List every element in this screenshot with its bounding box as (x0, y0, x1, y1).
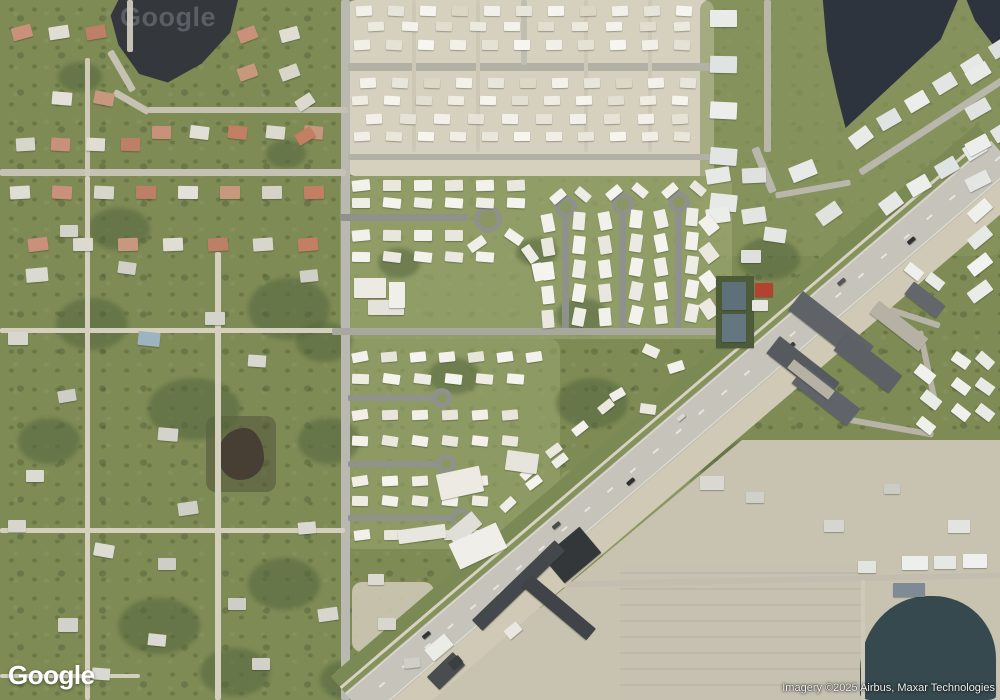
building (572, 212, 585, 231)
building (52, 185, 73, 199)
building (352, 436, 368, 447)
building (412, 410, 428, 421)
building (441, 435, 458, 447)
building (476, 180, 494, 192)
building (710, 101, 738, 119)
building (541, 285, 555, 304)
building (858, 561, 876, 573)
building (93, 90, 115, 107)
building (411, 435, 428, 447)
building (368, 574, 384, 585)
road (0, 169, 346, 176)
building (297, 237, 318, 252)
building (934, 556, 956, 569)
building (674, 40, 691, 51)
building (654, 281, 669, 301)
building (424, 78, 440, 89)
road (562, 207, 569, 331)
building (507, 373, 525, 384)
building (434, 114, 450, 125)
building (648, 78, 665, 89)
building (227, 125, 247, 140)
building (824, 520, 844, 532)
building (118, 238, 138, 252)
building (741, 250, 761, 263)
vehicle (907, 236, 916, 245)
vehicle (837, 277, 846, 286)
building (925, 272, 946, 292)
building (414, 230, 432, 241)
building (414, 197, 433, 209)
cul-de-sac-island (560, 201, 572, 213)
building (476, 197, 495, 208)
building (438, 351, 455, 363)
building (400, 114, 417, 125)
building (25, 267, 48, 283)
building (416, 96, 432, 106)
building (606, 22, 622, 31)
building (410, 351, 427, 363)
building (445, 251, 464, 263)
building (742, 167, 767, 183)
building (413, 251, 432, 263)
building (353, 529, 370, 541)
building (640, 96, 656, 106)
building (383, 230, 401, 241)
building (674, 22, 690, 32)
building (366, 114, 383, 125)
building (8, 332, 28, 345)
building (450, 40, 466, 50)
building (950, 351, 971, 370)
building (541, 310, 554, 329)
building (884, 484, 900, 494)
building (177, 501, 199, 517)
building (86, 138, 106, 152)
building (352, 198, 370, 208)
building (57, 389, 77, 404)
building (610, 132, 626, 142)
road (348, 461, 448, 467)
building (468, 114, 484, 124)
building (608, 96, 624, 106)
building (236, 25, 258, 44)
road (348, 515, 462, 521)
building (368, 22, 384, 32)
building (672, 114, 689, 125)
building (236, 63, 258, 82)
building (360, 78, 377, 89)
building (572, 22, 588, 31)
building (252, 658, 270, 670)
building (383, 180, 401, 191)
building (505, 450, 539, 474)
tree-cluster (18, 418, 80, 464)
building (502, 114, 518, 124)
building (476, 251, 495, 262)
building (504, 22, 520, 31)
building (352, 374, 369, 385)
building (265, 125, 285, 140)
building (544, 96, 560, 105)
building (584, 78, 600, 88)
building (610, 40, 626, 51)
building (317, 607, 339, 623)
building (208, 237, 229, 251)
building (354, 132, 370, 142)
building (418, 40, 434, 51)
building (471, 435, 488, 447)
building (488, 78, 504, 88)
road (341, 0, 350, 700)
building (870, 301, 929, 352)
building (700, 476, 724, 490)
building (445, 230, 463, 241)
building (94, 186, 115, 200)
building (383, 197, 402, 209)
building (158, 558, 176, 570)
google-logo[interactable]: Google (8, 660, 95, 691)
building (450, 132, 466, 141)
building (456, 78, 472, 88)
building (963, 554, 987, 568)
cul-de-sac-island (437, 393, 447, 403)
building (445, 180, 463, 191)
building (680, 78, 697, 89)
building (950, 377, 971, 397)
building (48, 25, 70, 41)
building (448, 96, 464, 105)
building (722, 314, 746, 342)
building (644, 6, 661, 17)
building (546, 40, 562, 50)
building (722, 282, 746, 310)
building (685, 208, 698, 227)
building (604, 114, 620, 124)
building (974, 377, 995, 396)
building (951, 403, 972, 423)
building (178, 186, 198, 199)
building (572, 259, 586, 278)
tree-cluster (200, 648, 270, 696)
building (709, 147, 737, 166)
building (93, 542, 115, 558)
tree-cluster (56, 298, 128, 350)
tree-cluster (58, 62, 102, 92)
vehicle (422, 631, 431, 640)
building (514, 132, 530, 141)
building (484, 6, 500, 16)
building (642, 132, 658, 142)
building (507, 198, 525, 209)
building (404, 657, 421, 669)
building (381, 351, 398, 362)
building (598, 259, 612, 278)
building (152, 126, 171, 139)
building (413, 373, 431, 385)
building (444, 373, 462, 385)
building (674, 132, 690, 142)
building (392, 78, 409, 89)
building (763, 227, 787, 244)
building (163, 238, 184, 252)
building (58, 618, 78, 632)
building (205, 312, 225, 325)
building (472, 409, 489, 420)
imagery-attribution: Imagery ©2025 Airbus, Maxar Technologies (782, 682, 995, 694)
road (764, 0, 771, 152)
road (0, 328, 345, 333)
building (352, 252, 370, 262)
building (893, 583, 925, 597)
road (348, 63, 714, 71)
building (598, 283, 612, 302)
building (576, 96, 592, 105)
building (676, 6, 693, 17)
building (354, 40, 371, 51)
building (616, 78, 632, 89)
building (966, 279, 993, 304)
building (352, 496, 368, 506)
building (73, 238, 93, 251)
building (189, 125, 209, 140)
building (667, 360, 685, 374)
road (85, 176, 90, 700)
building (685, 255, 699, 274)
cul-de-sac-island (673, 196, 685, 208)
building (480, 96, 496, 105)
building (121, 138, 140, 152)
tree-cluster (248, 558, 320, 610)
satellite-map[interactable]: GoogleGoogleImagery ©2025 Airbus, Maxar … (0, 0, 1000, 700)
building (11, 24, 34, 42)
building (507, 180, 526, 192)
vehicle (552, 521, 561, 530)
building (612, 6, 628, 17)
building (570, 114, 586, 124)
building (420, 6, 436, 17)
building (388, 6, 405, 17)
building (278, 63, 300, 82)
building (51, 137, 71, 151)
road (112, 89, 150, 115)
building (472, 495, 489, 506)
building (578, 132, 594, 141)
building (948, 520, 970, 533)
building (752, 300, 768, 311)
building (548, 6, 564, 16)
building (279, 26, 301, 43)
vehicle (676, 413, 685, 422)
building (482, 40, 498, 50)
building (402, 22, 418, 32)
building (520, 78, 536, 88)
building (710, 56, 737, 74)
building (746, 492, 764, 503)
building (642, 343, 661, 359)
building (552, 78, 568, 88)
google-watermark: Google (120, 2, 216, 33)
building (546, 132, 562, 141)
building (384, 96, 400, 106)
cul-de-sac-island (441, 459, 451, 469)
building (378, 618, 396, 630)
building (136, 186, 156, 200)
building (629, 209, 643, 228)
road (675, 202, 682, 331)
road (332, 328, 756, 335)
building (411, 495, 428, 507)
small-pond (218, 428, 264, 480)
building (299, 269, 318, 283)
road (148, 107, 348, 113)
building (220, 186, 240, 199)
building (386, 132, 402, 142)
building (467, 351, 484, 363)
building (640, 22, 656, 32)
building (117, 261, 136, 275)
building (352, 229, 371, 242)
building (975, 350, 996, 370)
building (85, 24, 107, 40)
building (452, 6, 468, 16)
building (639, 403, 656, 415)
building (470, 22, 486, 31)
building (902, 556, 928, 570)
building (382, 251, 401, 263)
building (975, 403, 996, 423)
building (27, 237, 48, 252)
building (414, 180, 432, 191)
building (253, 237, 274, 251)
vehicle (626, 477, 635, 486)
building (382, 410, 398, 420)
building (442, 410, 459, 421)
building (386, 40, 403, 51)
building (642, 40, 659, 51)
road (619, 204, 626, 331)
building (26, 470, 44, 482)
road (348, 395, 444, 401)
building (919, 389, 942, 411)
building (228, 598, 246, 610)
building (755, 283, 773, 297)
building (382, 476, 398, 487)
building (298, 521, 317, 535)
building (445, 197, 464, 208)
building (672, 96, 688, 106)
building (137, 331, 160, 347)
building (248, 354, 267, 367)
building (304, 186, 324, 200)
building (654, 305, 668, 324)
building (157, 427, 178, 442)
tree-cluster (556, 378, 628, 428)
building (572, 235, 586, 254)
road (340, 214, 468, 221)
building (436, 22, 452, 32)
building (8, 520, 26, 532)
road (85, 58, 90, 176)
building (482, 132, 498, 141)
building (351, 179, 370, 192)
building (538, 22, 554, 31)
building (60, 225, 78, 237)
building (352, 96, 368, 106)
building (51, 91, 72, 106)
road (0, 528, 345, 533)
road (348, 154, 714, 160)
building (580, 6, 596, 16)
building (389, 282, 405, 308)
cul-de-sac-island (479, 210, 497, 228)
building (412, 476, 429, 487)
building (354, 278, 386, 298)
building (512, 96, 528, 105)
building (502, 409, 519, 420)
tree-cluster (298, 418, 360, 464)
building (516, 6, 532, 16)
building (262, 186, 282, 199)
building (598, 308, 611, 327)
cul-de-sac-island (617, 198, 629, 210)
building (502, 435, 519, 447)
building (418, 132, 434, 142)
building (356, 6, 373, 17)
building (578, 40, 594, 50)
building (685, 231, 699, 250)
building (10, 185, 31, 199)
building (536, 114, 552, 124)
building (638, 114, 654, 125)
building (514, 40, 530, 50)
building (710, 10, 737, 27)
building (16, 137, 36, 151)
building (476, 373, 494, 385)
building (147, 633, 166, 647)
building (381, 495, 398, 507)
